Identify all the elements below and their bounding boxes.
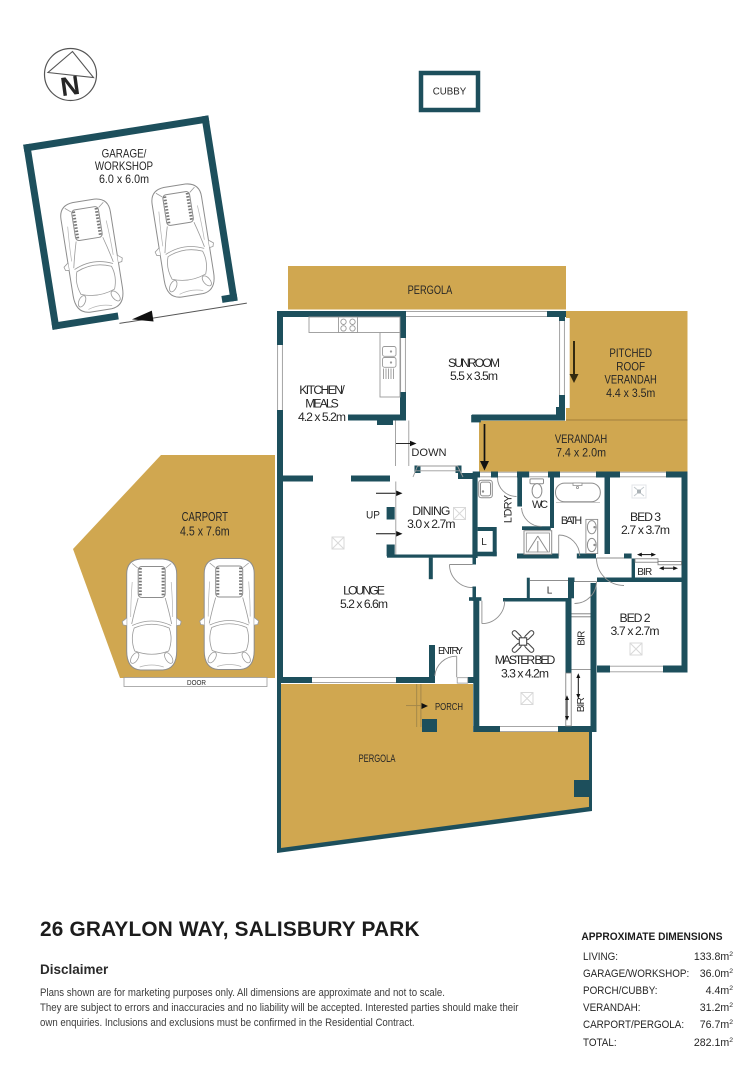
svg-text:4.4 x 3.5m: 4.4 x 3.5m bbox=[606, 386, 655, 400]
svg-text:CARPORT: CARPORT bbox=[182, 509, 228, 524]
svg-text:PITCHED: PITCHED bbox=[609, 346, 652, 360]
svg-text:ROOF: ROOF bbox=[616, 359, 645, 373]
svg-text:4.5 x 7.6m: 4.5 x 7.6m bbox=[180, 523, 230, 538]
svg-text:ENTRY: ENTRY bbox=[438, 646, 463, 657]
svg-text:BED 3: BED 3 bbox=[630, 510, 661, 524]
svg-text:3.3 x 4.2m: 3.3 x 4.2m bbox=[501, 667, 549, 681]
svg-text:L'DRY: L'DRY bbox=[503, 495, 515, 523]
svg-text:PERGOLA: PERGOLA bbox=[359, 753, 396, 765]
svg-text:DINING: DINING bbox=[412, 504, 450, 518]
svg-text:VERANDAH: VERANDAH bbox=[605, 373, 657, 387]
svg-text:2.7 x 3.7m: 2.7 x 3.7m bbox=[621, 523, 670, 537]
svg-text:UP: UP bbox=[366, 509, 380, 521]
svg-text:PORCH: PORCH bbox=[435, 701, 463, 713]
svg-text:6.0 x 6.0m: 6.0 x 6.0m bbox=[99, 172, 149, 186]
svg-text:5.2 x 6.6m: 5.2 x 6.6m bbox=[340, 597, 388, 611]
svg-text:BIR: BIR bbox=[577, 631, 588, 646]
svg-text:WORKSHOP: WORKSHOP bbox=[95, 159, 153, 173]
svg-text:LOUNGE: LOUNGE bbox=[343, 584, 385, 598]
svg-text:3.0 x 2.7m: 3.0 x 2.7m bbox=[407, 517, 455, 531]
svg-text:7.4 x 2.0m: 7.4 x 2.0m bbox=[556, 445, 606, 459]
svg-text:DOWN: DOWN bbox=[411, 447, 446, 459]
svg-text:BED 2: BED 2 bbox=[620, 611, 651, 625]
svg-text:MEALS: MEALS bbox=[305, 397, 339, 411]
svg-text:WC: WC bbox=[532, 499, 548, 511]
svg-text:PERGOLA: PERGOLA bbox=[408, 285, 453, 297]
svg-text:VERANDAH: VERANDAH bbox=[555, 432, 607, 446]
svg-text:4.2 x 5.2m: 4.2 x 5.2m bbox=[298, 410, 346, 424]
svg-text:DOOR: DOOR bbox=[187, 680, 206, 687]
svg-text:MASTER BED: MASTER BED bbox=[495, 653, 556, 667]
svg-text:CUBBY: CUBBY bbox=[433, 87, 467, 98]
svg-text:3.7 x 2.7m: 3.7 x 2.7m bbox=[611, 624, 660, 638]
svg-text:5.5 x 3.5m: 5.5 x 3.5m bbox=[450, 369, 498, 383]
svg-text:BATH: BATH bbox=[561, 515, 582, 527]
svg-text:L: L bbox=[481, 537, 487, 548]
svg-text:SUNROOM: SUNROOM bbox=[448, 356, 500, 370]
svg-text:BIR: BIR bbox=[576, 697, 587, 712]
svg-text:BIR: BIR bbox=[637, 567, 652, 578]
svg-text:KITCHEN/: KITCHEN/ bbox=[299, 383, 345, 397]
svg-text:L: L bbox=[547, 586, 553, 597]
